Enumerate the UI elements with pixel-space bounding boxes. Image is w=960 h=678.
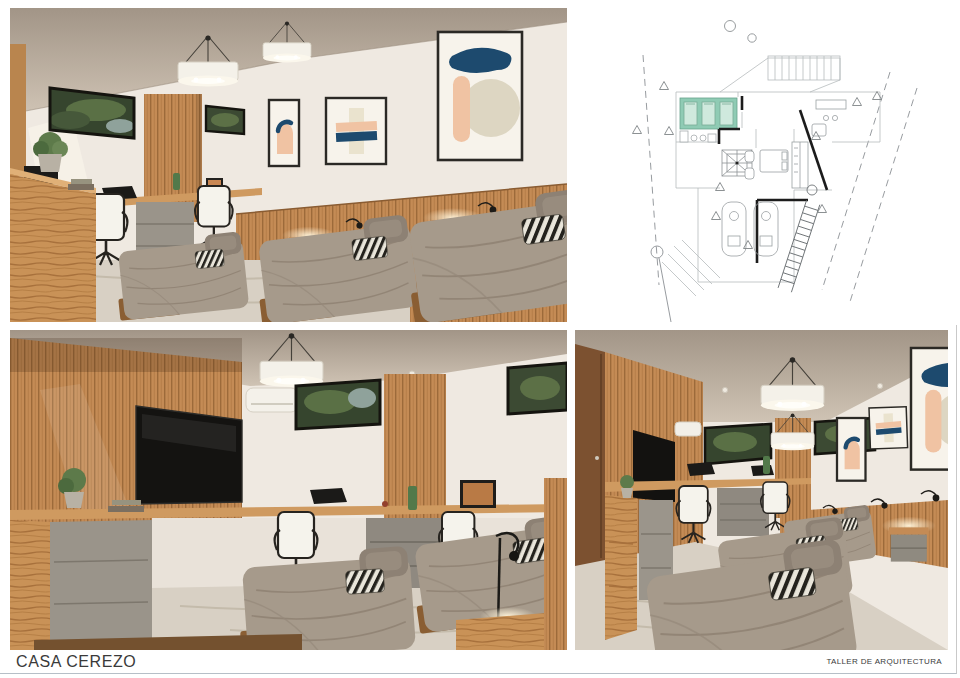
recessed-spot-icon: [722, 387, 727, 392]
wood-credenza: [10, 174, 96, 322]
bottle: [173, 173, 180, 190]
building-outline: [662, 56, 880, 296]
clerestory-window: [508, 363, 567, 414]
clerestory-window: [206, 106, 244, 134]
clerestory-window: [705, 424, 771, 464]
ac-unit: [246, 388, 298, 412]
laptop: [687, 462, 715, 476]
laptop: [751, 465, 774, 476]
ac-unit: [675, 422, 701, 436]
wood-pillar: [10, 44, 26, 176]
clerestory-window: [50, 88, 134, 138]
recessed-spot-icon: [877, 383, 882, 388]
bathroom-fixtures: [680, 131, 716, 142]
studio-label: TALLER DE ARQUITECTURA: [826, 657, 942, 666]
wood-dresser: [605, 495, 637, 640]
art-frame-arch: [269, 100, 299, 166]
books: [108, 506, 144, 512]
bottle: [763, 456, 770, 474]
kitchen-dining: [812, 100, 846, 136]
art-frame-brushstroke: [438, 32, 522, 160]
wood-slat-bed-panel: [544, 478, 567, 650]
laptop: [310, 488, 347, 504]
wood-side-panel: [10, 520, 50, 650]
exterior-stair: [778, 200, 820, 292]
bottle: [408, 486, 417, 510]
apple: [382, 501, 388, 507]
tv-screen: [633, 430, 675, 502]
art-frame-brushstroke: [911, 348, 948, 470]
art-frame-stripes: [869, 407, 908, 449]
art-frame-stripes: [326, 98, 386, 164]
clerestory-window: [296, 380, 380, 429]
render-top-left: [10, 8, 567, 322]
presentation-sheet: CASA CEREZO TALLER DE ARQUITECTURA: [0, 0, 957, 674]
garage-bays: [722, 202, 778, 256]
books: [68, 184, 94, 190]
art-frame-arch: [837, 418, 866, 481]
drawer-unit: [50, 520, 152, 650]
floor-plan: [570, 0, 960, 325]
master-bedroom: [745, 142, 808, 188]
drawer-unit: [717, 488, 769, 536]
highlighted-bedroom: [680, 98, 737, 129]
render-bottom-left: [10, 330, 567, 650]
title-block: CASA CEREZO TALLER DE ARQUITECTURA: [0, 650, 956, 673]
render-bottom-right: [575, 330, 948, 650]
wood-door: [575, 344, 605, 576]
tv-screen: [136, 406, 242, 504]
project-title: CASA CEREZO: [16, 653, 136, 671]
